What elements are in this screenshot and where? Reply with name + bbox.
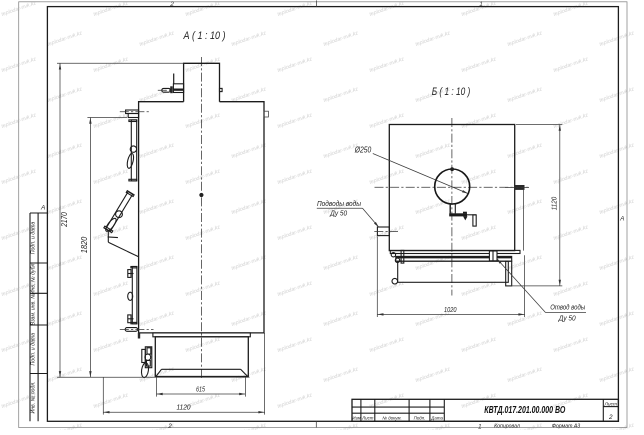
svg-text:2170: 2170 — [60, 212, 69, 228]
svg-text:Подп. и дата: Подп. и дата — [31, 333, 37, 366]
svg-text:КВТД.017.201.00.000 ВО: КВТД.017.201.00.000 ВО — [484, 405, 565, 416]
svg-text:Лист: Лист — [604, 401, 618, 407]
svg-text:А: А — [40, 205, 45, 212]
svg-text:Подводы воды: Подводы воды — [317, 199, 362, 208]
svg-text:Б ( 1 : 10 ): Б ( 1 : 10 ) — [432, 86, 471, 98]
svg-text:Отвод воды: Отвод воды — [550, 302, 586, 311]
svg-text:№ докум.: № докум. — [382, 415, 401, 420]
svg-text:Ø250: Ø250 — [354, 145, 372, 154]
svg-text:1: 1 — [478, 423, 482, 430]
svg-text:А: А — [619, 216, 624, 223]
svg-text:Подп. и дата: Подп. и дата — [31, 222, 37, 255]
svg-text:1820: 1820 — [80, 236, 89, 253]
svg-text:А ( 1 : 10 ): А ( 1 : 10 ) — [183, 30, 226, 42]
svg-text:Дата: Дата — [430, 415, 443, 420]
svg-text:Взам. инв. №: Взам. инв. № — [31, 293, 37, 325]
svg-text:2: 2 — [608, 414, 613, 421]
svg-text:2: 2 — [167, 423, 172, 430]
svg-text:Инв. № дубл.: Инв. № дубл. — [31, 262, 37, 294]
svg-text:Ду 50: Ду 50 — [558, 313, 576, 322]
svg-text:1120: 1120 — [177, 403, 192, 412]
svg-text:1120: 1120 — [550, 196, 559, 210]
svg-text:Ду 50: Ду 50 — [329, 209, 347, 218]
svg-text:Лист: Лист — [361, 415, 374, 420]
svg-text:1: 1 — [479, 1, 483, 8]
svg-text:Изм: Изм — [352, 415, 360, 420]
svg-text:Инв. № подл.: Инв. № подл. — [31, 381, 37, 413]
svg-text:Формат А3: Формат А3 — [552, 424, 580, 430]
svg-text:615: 615 — [196, 385, 206, 394]
svg-text:Копировал: Копировал — [494, 424, 520, 430]
svg-text:1020: 1020 — [444, 305, 457, 314]
svg-text:Подп.: Подп. — [414, 415, 426, 420]
svg-text:2: 2 — [169, 1, 174, 8]
